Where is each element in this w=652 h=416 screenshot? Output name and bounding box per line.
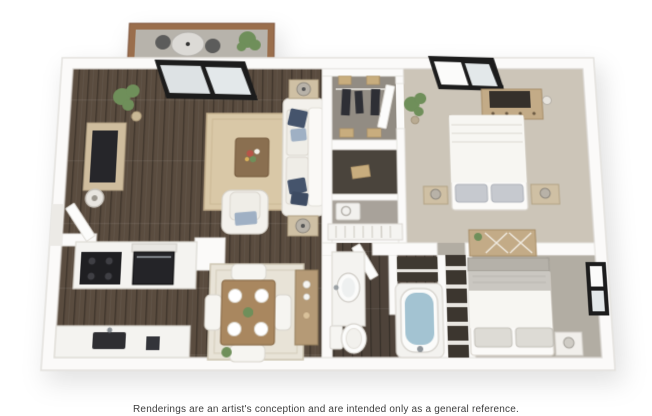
folded-blanket <box>468 271 550 290</box>
plan-perspective-wrapper <box>0 13 652 407</box>
sink-basin <box>342 278 355 298</box>
niche-shelf <box>397 269 438 272</box>
sofa-back <box>308 108 323 206</box>
cooktop <box>79 252 121 285</box>
dining-chair <box>229 345 265 362</box>
patio-sliding-door <box>153 60 259 101</box>
vanity-faucet <box>334 285 339 290</box>
pillow <box>515 328 553 347</box>
linen-closet <box>445 255 469 358</box>
bed-1 <box>449 115 528 210</box>
armchair-pillow <box>234 211 257 226</box>
nightstand-lamp <box>563 337 574 348</box>
dining-area <box>204 264 318 362</box>
closet-divider-wall <box>332 140 397 150</box>
bedroom1-window <box>428 56 505 91</box>
bedroom2-window <box>585 262 609 315</box>
dresser-lamp <box>542 96 551 104</box>
pillow <box>474 328 512 347</box>
dining-chair <box>204 295 221 330</box>
nightstand-lamp <box>431 189 441 199</box>
hall-plant-pot <box>411 116 419 124</box>
kitchen-sink <box>92 332 126 349</box>
sofa-pillow-dark <box>290 191 309 206</box>
wall-living-closets <box>322 69 332 248</box>
duvet <box>469 291 553 328</box>
wall-bedrooms <box>372 243 437 255</box>
toilet-tank <box>330 326 342 349</box>
hanging-clothes <box>341 89 380 116</box>
dining-chair <box>231 264 266 280</box>
washer <box>336 203 360 220</box>
dresser-tv <box>489 91 531 108</box>
disclaimer-text: Renderings are an artist's conception an… <box>0 404 652 415</box>
headboard <box>468 258 550 271</box>
sofa <box>282 98 324 215</box>
range-hood <box>132 244 177 252</box>
small-appliance <box>146 336 160 350</box>
closet-divider-wall <box>332 194 398 200</box>
floorplan-svg <box>0 13 652 407</box>
armchair <box>221 190 268 234</box>
plant-pot <box>131 112 141 121</box>
closet-top-wall <box>322 69 403 76</box>
toilet <box>330 324 366 353</box>
window-pane <box>591 291 605 312</box>
tub-water <box>405 293 435 345</box>
toilet-seat <box>346 329 362 349</box>
bed-2 <box>468 258 554 355</box>
sofa-pillow-striped <box>290 128 307 142</box>
table-lamp-finial <box>301 224 305 228</box>
sofa-pillow-navy <box>287 108 308 128</box>
floorplan-render: Renderings are an artist's conception an… <box>0 0 652 416</box>
dining-chair <box>274 295 291 330</box>
louvered-doors <box>328 224 403 240</box>
tv <box>90 131 119 183</box>
nightstand-lamp <box>540 188 550 198</box>
bathtub <box>395 283 444 357</box>
pillow <box>455 184 488 202</box>
window-pane <box>590 266 604 286</box>
pillow <box>491 184 524 202</box>
table-lamp-finial <box>302 87 306 91</box>
